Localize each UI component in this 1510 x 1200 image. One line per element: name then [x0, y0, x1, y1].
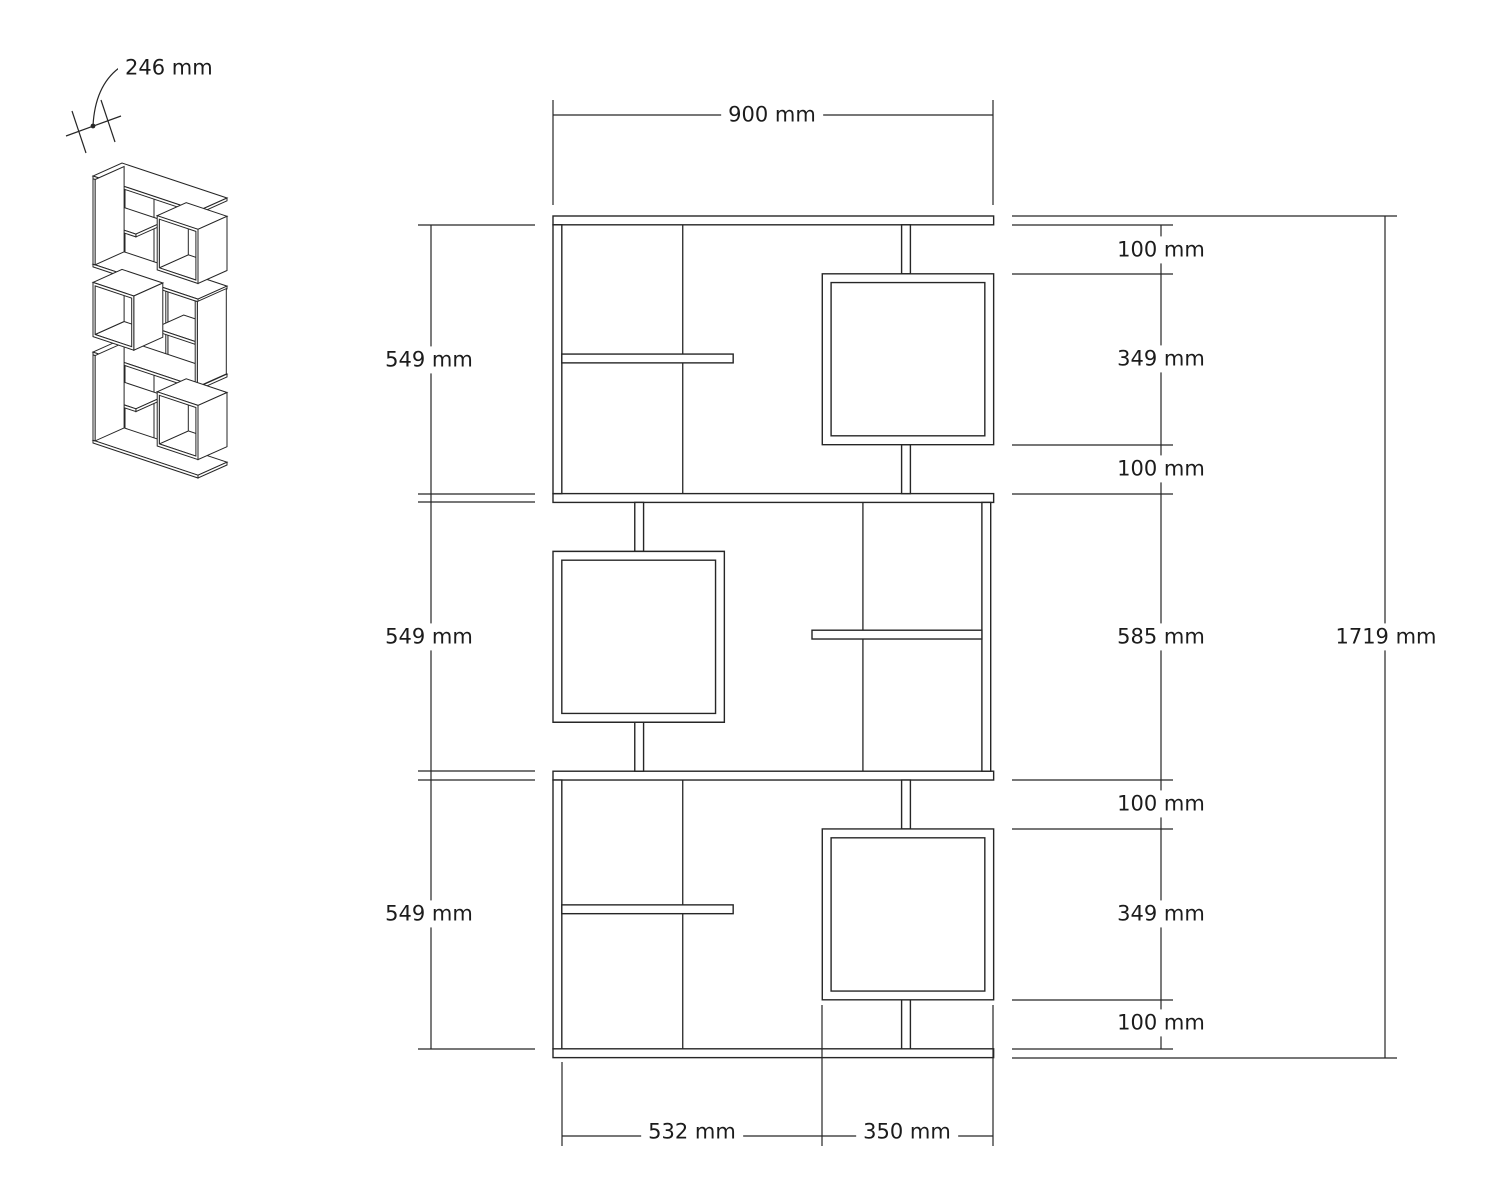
right-dim-label-7: 100 mm: [1110, 1009, 1212, 1036]
bottom-width-label-1: 532 mm: [641, 1118, 743, 1145]
dimension-lines: [66, 68, 1397, 1146]
right-dim-label-3: 100 mm: [1110, 455, 1212, 482]
right-dim-label-4: 585 mm: [1110, 623, 1212, 650]
right-dim-label-2: 349 mm: [1110, 345, 1212, 372]
top-width-label: 900 mm: [721, 101, 823, 128]
iso-view: [93, 163, 227, 478]
overall-height-label: 1719 mm: [1328, 623, 1443, 650]
depth-dimension-label: 246 mm: [118, 54, 220, 81]
technical-drawing-canvas: [0, 0, 1510, 1200]
front-elevation: [553, 216, 994, 1058]
bottom-width-label-2: 350 mm: [856, 1118, 958, 1145]
right-dim-label-6: 349 mm: [1110, 900, 1212, 927]
left-section-label-3: 549 mm: [378, 900, 480, 927]
left-section-label-2: 549 mm: [378, 623, 480, 650]
dimension-depth-leader: [66, 68, 121, 153]
right-dim-label-5: 100 mm: [1110, 790, 1212, 817]
right-dim-label-1: 100 mm: [1110, 236, 1212, 263]
page: 246 mm 900 mm 549 mm 549 mm 549 mm 100 m…: [0, 0, 1510, 1200]
left-section-label-1: 549 mm: [378, 346, 480, 373]
